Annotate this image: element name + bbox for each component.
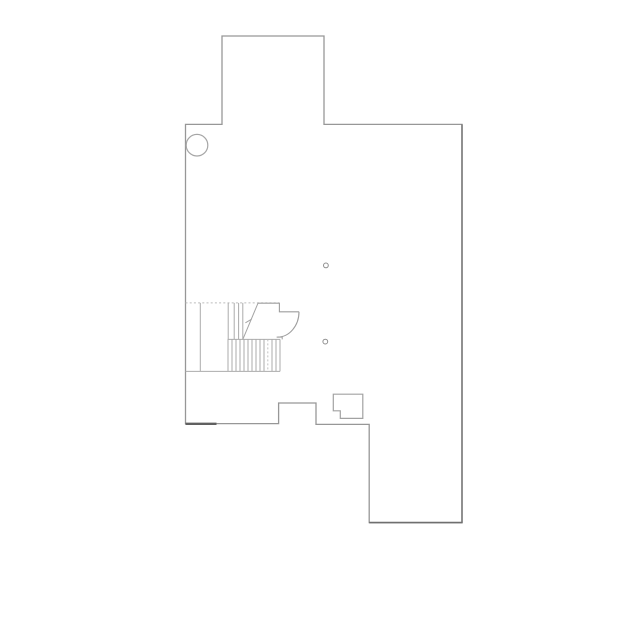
support-post-circle-lower xyxy=(323,339,328,344)
door-swing-arc xyxy=(278,312,300,337)
floor-plan-page xyxy=(0,0,639,639)
fireplace-outline xyxy=(333,394,363,418)
floor-plan-drawing xyxy=(0,0,639,639)
stair-lower-tread-lines xyxy=(228,339,280,371)
stair-break-line xyxy=(243,303,258,339)
support-post-circle-upper xyxy=(324,263,329,268)
stair-upper-tread-lines xyxy=(228,303,243,340)
floor-plan-canvas xyxy=(0,0,639,639)
corner-column-circle xyxy=(186,134,208,156)
closet-door-header-line xyxy=(258,303,299,312)
building-outline xyxy=(186,36,463,523)
